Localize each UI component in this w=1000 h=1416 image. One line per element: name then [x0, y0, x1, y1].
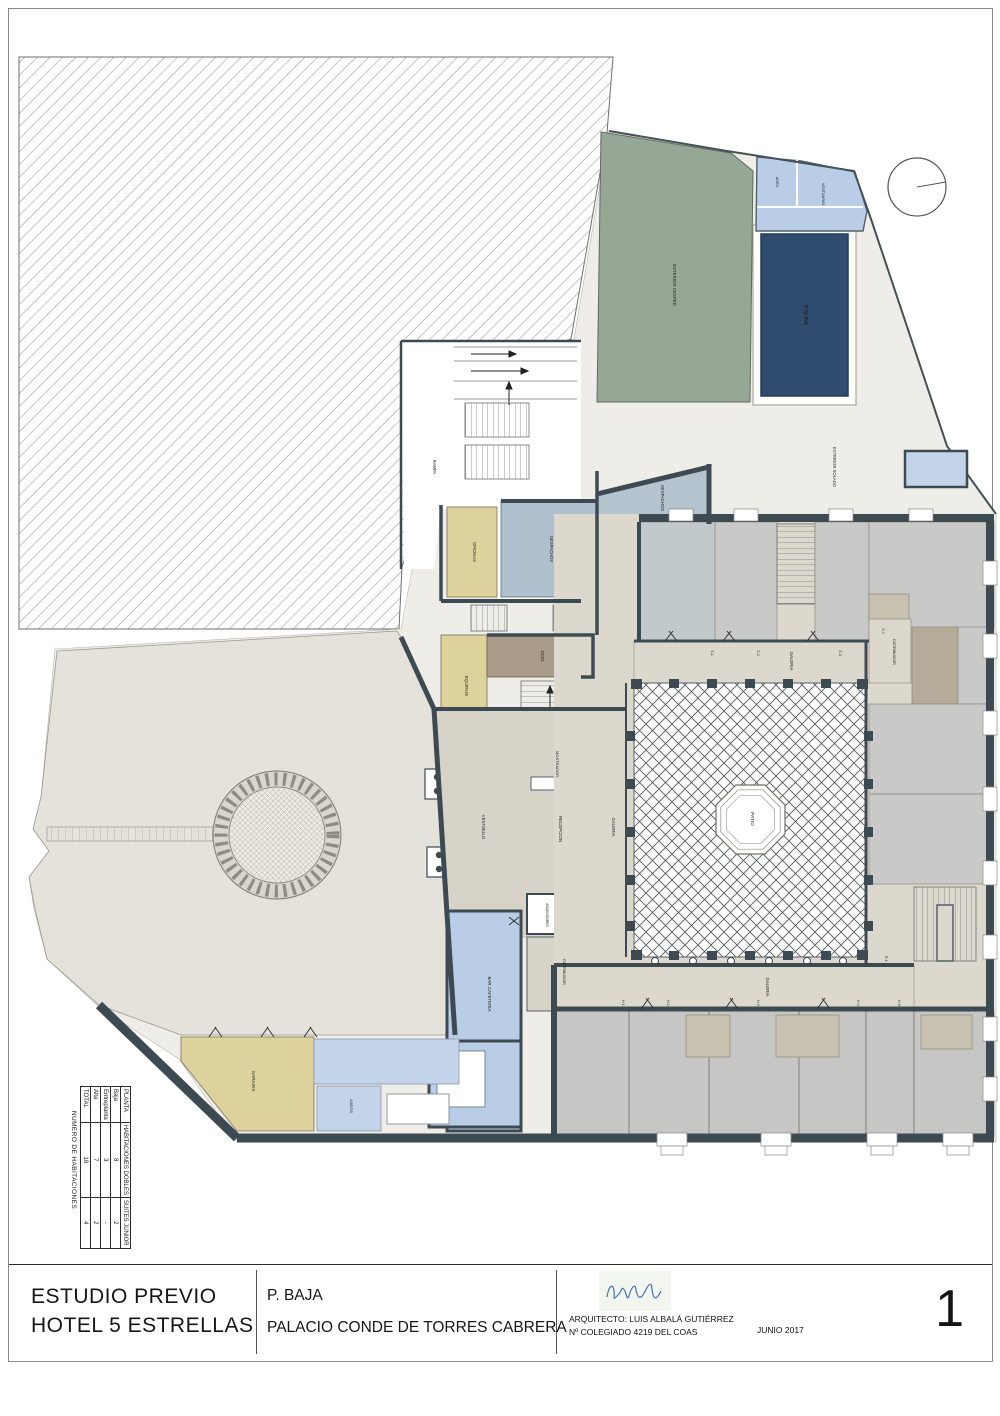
aseos-room — [317, 1086, 381, 1131]
east-room-3 — [869, 794, 991, 884]
label-galeria-norte: GALERIA — [789, 651, 794, 670]
vestuario-block — [756, 157, 867, 231]
north-room-3 — [815, 522, 869, 641]
tag-e1: E.1 — [884, 956, 888, 961]
tag-s1: S.1 — [710, 650, 714, 655]
cell-planta-3: TOTAL — [81, 1087, 91, 1123]
tag-s3: S.3 — [838, 650, 842, 655]
label-garajes: GARAJES — [251, 1071, 256, 1092]
label-galeria-sur: GALERIA — [765, 977, 770, 996]
label-distribuidor: DISTRIBUIDOR — [562, 959, 566, 985]
oficinas-room — [447, 507, 497, 597]
sheet-number: 1 — [935, 1279, 964, 1339]
label-cesped: EXTERIOR CESPED — [672, 264, 677, 306]
rooms-table-block: PLANTA HABITACIONES DOBLES SUITES JUNIOR… — [61, 1086, 131, 1234]
cell-suites-1: - — [101, 1197, 111, 1248]
cell-planta-0: Baja — [111, 1087, 121, 1123]
tag-h1: H.1 — [621, 1000, 625, 1006]
table-header-row: PLANTA HABITACIONES DOBLES SUITES JUNIOR — [121, 1087, 131, 1249]
project-title: ESTUDIO PREVIO HOTEL 5 ESTRELLAS — [31, 1283, 253, 1341]
north-stair — [777, 524, 815, 604]
tag-s2: S.2 — [756, 650, 760, 655]
label-piscina: PISCINA — [802, 305, 808, 326]
tag-h5: H.5 — [897, 1000, 901, 1006]
label-despachos-norte: DESPACHOS — [660, 485, 665, 511]
cell-dobles-0: 8 — [111, 1122, 121, 1197]
label-oficinas: OFICINAS — [472, 542, 477, 562]
drawing-date: JUNIO 2017 — [757, 1325, 804, 1335]
table-row: Alta 7 2 — [91, 1087, 101, 1249]
label-ocio: OCIO — [540, 651, 545, 662]
col-suites: SUITES JUNIOR — [121, 1197, 131, 1248]
col-dobles: HABITACIONES DOBLES — [121, 1122, 131, 1197]
east-distribuidor — [869, 619, 911, 683]
label-distribuidor-este: DISTRIBUIDOR — [892, 639, 896, 665]
galeria-norte-area — [634, 641, 869, 683]
aseos-band — [314, 1039, 459, 1084]
title-block: ESTUDIO PREVIO HOTEL 5 ESTRELLAS P. BAJA… — [9, 1264, 992, 1362]
label-vestibulo: VESTIBULO — [481, 815, 486, 840]
label-vestuario: VESTUARIO — [821, 183, 825, 205]
title-divider-1 — [256, 1270, 257, 1354]
rooms-table-title: NUMERO DE HABITACIONES — [70, 1086, 77, 1234]
project-line1: ESTUDIO PREVIO — [31, 1283, 253, 1312]
garajes-area — [181, 1037, 314, 1131]
cell-suites-2: 2 — [91, 1197, 101, 1248]
entry-steps-1 — [471, 605, 507, 631]
stair-nw-2 — [465, 445, 529, 479]
building-name: PALACIO CONDE DE TORRES CABRERA — [267, 1319, 567, 1337]
cell-suites-3: 4 — [81, 1197, 91, 1248]
east-closet-room — [912, 627, 958, 704]
east-stair-core — [937, 905, 953, 961]
cell-dobles-2: 7 — [91, 1122, 101, 1197]
signature — [599, 1271, 671, 1311]
label-despachos-oeste: DESPACHOS — [549, 536, 554, 562]
label-bar-cafeteria: BAR CAFETERIA — [487, 977, 492, 1012]
cell-planta-2: Alta — [91, 1087, 101, 1123]
col-planta: PLANTA — [121, 1087, 131, 1123]
label-recepcion: RECEPCION — [558, 816, 563, 842]
project-line2: HOTEL 5 ESTRELLAS — [31, 1312, 253, 1341]
rooms-table: PLANTA HABITACIONES DOBLES SUITES JUNIOR… — [80, 1086, 131, 1249]
label-ascensores: ASCENSORES — [545, 903, 549, 927]
label-aseo: ASEO — [775, 177, 779, 188]
architect-license: Nº COLEGIADO 4219 DEL COAS — [569, 1326, 734, 1339]
north-indicator — [888, 158, 946, 216]
tag-h3: H.3 — [756, 1000, 760, 1006]
label-equipaje: EQUIPAJE — [464, 676, 469, 697]
cell-dobles-3: 18 — [81, 1122, 91, 1197]
north-room-1 — [639, 522, 715, 641]
tag-s4: S.4 — [881, 628, 885, 633]
annex-room — [905, 451, 967, 487]
tag-h4: H.4 — [856, 1000, 860, 1006]
store-room — [387, 1094, 449, 1124]
stair-nw-1 — [465, 403, 529, 437]
tag-h2: H.2 — [666, 1000, 670, 1006]
cell-planta-1: Entreplanta — [101, 1087, 111, 1123]
plan-name: P. BAJA — [267, 1287, 567, 1305]
label-aseos: ASEOS — [349, 1099, 354, 1113]
signature-scribble — [599, 1271, 671, 1311]
table-row: TOTAL 18 4 — [81, 1087, 91, 1249]
table-row: Entreplanta 3 - — [101, 1087, 111, 1249]
plan-identification: P. BAJA PALACIO CONDE DE TORRES CABRERA — [267, 1287, 567, 1337]
architect-name: ARQUITECTO: LUIS ALBALÁ GUTIÉRREZ — [569, 1313, 734, 1326]
north-room-2 — [715, 522, 777, 641]
plaza-fountain — [213, 771, 341, 899]
east-room-2 — [869, 704, 991, 794]
label-patio: PATIO — [749, 812, 755, 826]
table-row: Baja 8 2 — [111, 1087, 121, 1249]
cell-suites-0: 2 — [111, 1197, 121, 1248]
drawing-sheet: PISCINA EXTERIOR CESPED ASEO VESTUARIO E… — [8, 8, 993, 1362]
label-rampa: RAMPA — [432, 460, 437, 475]
cell-dobles-1: 3 — [101, 1122, 111, 1197]
label-exterior-solado: EXTERIOR SOLADO — [832, 447, 837, 488]
plaza-path — [47, 827, 215, 841]
label-galeria-oeste: GALERIA — [611, 817, 616, 836]
floor-plan: PISCINA EXTERIOR CESPED ASEO VESTUARIO E… — [9, 9, 1000, 1269]
architect-info: ARQUITECTO: LUIS ALBALÁ GUTIÉRREZ Nº COL… — [569, 1313, 734, 1339]
label-mostrador: MOSTRADOR — [555, 751, 560, 777]
